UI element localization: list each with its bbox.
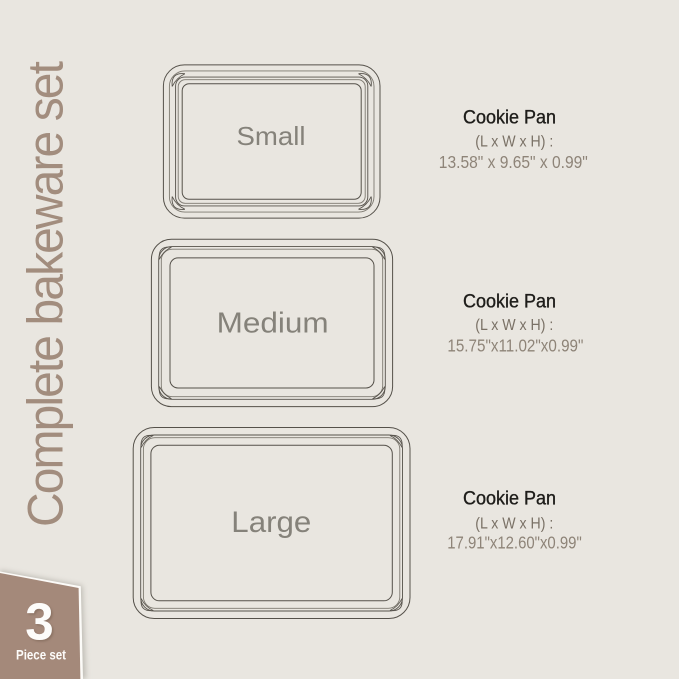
svg-text:(L x W x H) :: (L x W x H) : — [475, 516, 553, 533]
svg-text:Piece set: Piece set — [16, 646, 66, 662]
svg-text:Complete bakeware set: Complete bakeware set — [18, 61, 74, 527]
svg-text:Medium: Medium — [217, 307, 329, 339]
svg-text:Small: Small — [237, 121, 306, 151]
svg-text:13.58" x 9.65" x 0.99": 13.58" x 9.65" x 0.99" — [439, 152, 588, 172]
svg-text:Large: Large — [231, 506, 311, 539]
svg-text:(L x W x H) :: (L x W x H) : — [475, 133, 553, 150]
svg-text:15.75"x11.02"x0.99": 15.75"x11.02"x0.99" — [447, 336, 583, 356]
svg-text:Cookie Pan: Cookie Pan — [463, 108, 556, 129]
svg-text:(L x W x H) :: (L x W x H) : — [475, 317, 553, 334]
svg-text:17.91"x12.60"x0.99": 17.91"x12.60"x0.99" — [447, 533, 582, 553]
svg-text:Cookie Pan: Cookie Pan — [463, 489, 556, 510]
svg-text:3: 3 — [25, 593, 54, 651]
svg-text:Cookie Pan: Cookie Pan — [463, 292, 556, 313]
